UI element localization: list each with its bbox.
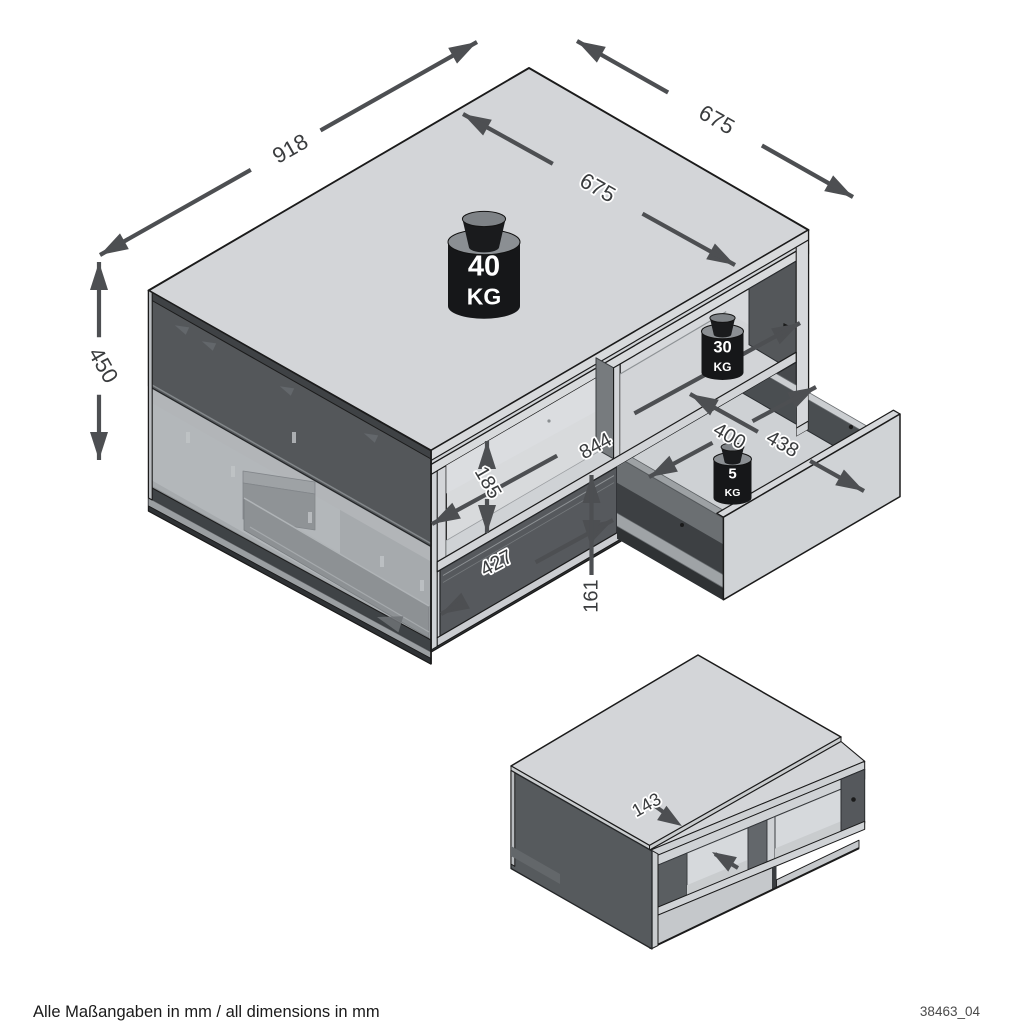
svg-text:KG: KG — [725, 487, 741, 499]
svg-text:KG: KG — [714, 360, 732, 374]
svg-text:KG: KG — [467, 283, 502, 309]
svg-text:5: 5 — [728, 466, 736, 483]
svg-text:40: 40 — [468, 250, 500, 282]
svg-text:161: 161 — [580, 579, 602, 612]
svg-text:38463_04: 38463_04 — [920, 1004, 981, 1019]
svg-text:30: 30 — [713, 338, 731, 356]
svg-text:Alle Maßangaben in mm / all di: Alle Maßangaben in mm / all dimensions i… — [33, 1003, 380, 1021]
